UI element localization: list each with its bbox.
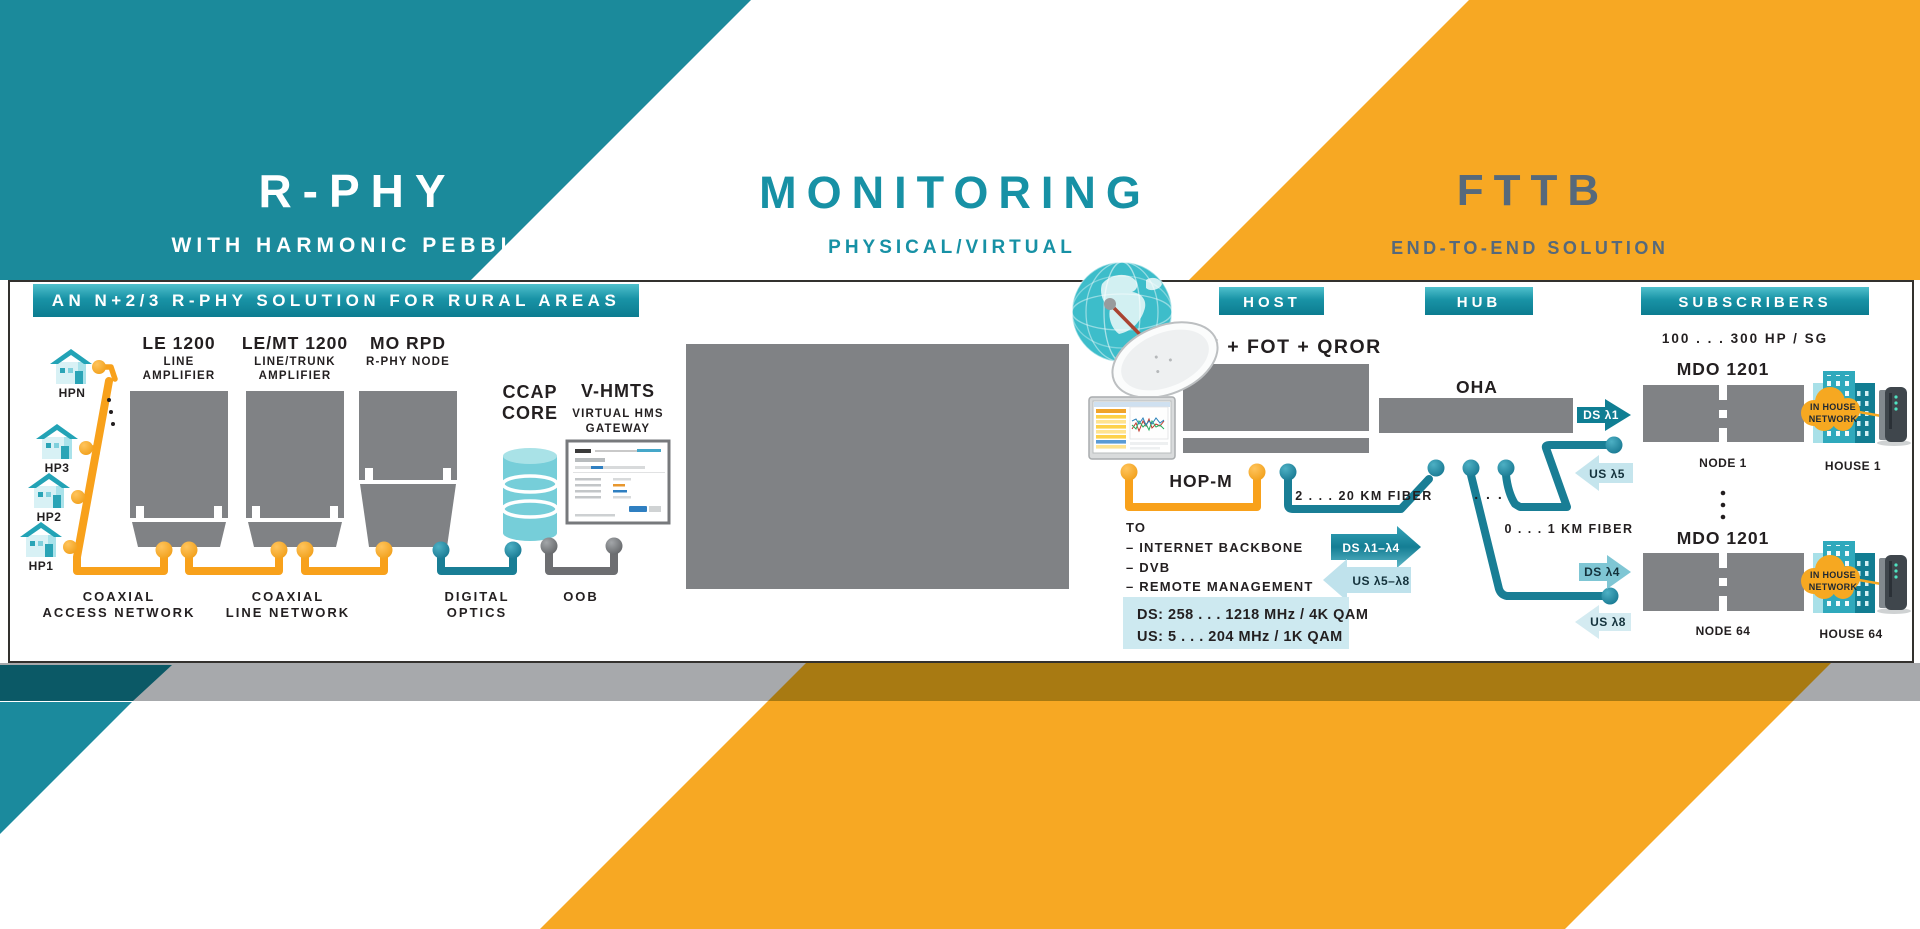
branch-ball [79,441,93,455]
house-label: HP3 [45,461,70,475]
pin-ball [376,542,393,559]
house-label: HP2 [37,510,62,524]
vhmts: V-HMTS VIRTUAL HMS GATEWAY [567,381,669,523]
vhmts-desc: VIRTUAL HMS [572,408,664,420]
node-label: NODE 1 [1699,456,1747,470]
house-label: HPN [59,386,86,400]
vhmts-name: V-HMTS [581,381,655,401]
ds-lambda1-label: DS λ1 [1583,408,1619,422]
spec-us: US: 5 . . . 204 MHz / 1K QAM [1137,629,1343,645]
rphy-subtitle: WITH HARMONIC PEBBLE [132,234,572,258]
ellipsis-dots [1721,515,1726,520]
network-labels: COAXIAL ACCESS NETWORK COAXIAL LINE NETW… [43,589,599,620]
us-lambda5-label: US λ5 [1589,467,1625,481]
modem-icon [1877,555,1911,614]
pin-ball-gray [606,538,623,555]
to-item: – INTERNET BACKBONE [1126,540,1303,555]
diagram-svg: AN N+2/3 R-PHY SOLUTION FOR RURAL AREAS [10,282,1912,661]
house-icon [50,349,92,384]
house-hp1: HP1 [20,522,62,573]
to-item: – REMOTE MANAGEMENT [1126,579,1313,594]
pin-ball-teal [1280,464,1297,481]
mdo-label: MDO 1201 [1677,528,1770,548]
pin-ball [1249,464,1266,481]
digital-optics-u [441,553,513,571]
vhmts-desc: GATEWAY [586,423,651,435]
device-morpd: MO RPD R-PHY NODE [359,333,457,547]
device-lemt1200: LE/MT 1200 LINE/TRUNK AMPLIFIER [242,333,348,547]
to-title: TO [1126,520,1146,535]
pin-ball-teal [505,542,522,559]
diagram-panel: AN N+2/3 R-PHY SOLUTION FOR RURAL AREAS [8,280,1914,663]
fiber-2-20km-label: 2 . . . 20 KM FIBER [1295,489,1433,503]
modem-icon [1877,387,1911,446]
device-body [246,391,344,506]
capacity-label: 100 . . . 300 HP / SG [1662,331,1828,346]
spec-ds: DS: 258 . . . 1218 MHz / 4K QAM [1137,607,1368,623]
device-desc: LINE/TRUNK [254,356,336,368]
mdo-label: MDO 1201 [1677,359,1770,379]
house-icon [28,473,70,508]
us-lambda5-8-label: US λ5–λ8 [1352,574,1409,588]
inhouse-label: NETWORK [1809,414,1858,424]
oob-u [549,549,614,571]
to-item: – DVB [1126,560,1170,575]
device-name: MO RPD [370,333,446,353]
monitoring-screenshot-placeholder [686,344,1069,589]
monitoring-subtitle: PHYSICAL/VIRTUAL [690,237,1210,259]
pin-ball [297,542,314,559]
device-skirt [360,484,456,547]
house-hp2: HP2 [28,473,70,524]
rural-banner: AN N+2/3 R-PHY SOLUTION FOR RURAL AREAS [33,284,639,317]
house-label: HOUSE 1 [1825,459,1881,473]
subscribers-section: SUBSCRIBERS 100 . . . 300 HP / SG MDO 12… [1641,287,1911,641]
branch-ball [63,540,77,554]
house-hp3: HP3 [36,424,78,475]
pin-ball [181,542,198,559]
inhouse-label: NETWORK [1809,582,1858,592]
fttb-subtitle: END-TO-END SOLUTION [1328,238,1728,259]
oha-pin [1498,460,1515,477]
device-skirt [248,522,342,547]
house-label: HOUSE 64 [1819,627,1882,641]
rural-banner-label: AN N+2/3 R-PHY SOLUTION FOR RURAL AREAS [52,291,621,310]
ellipsis-dots [107,398,111,402]
pin-ball [271,542,288,559]
device-skirt [132,522,226,547]
net-label: DIGITAL [444,589,509,604]
ccap-core: CCAP CORE [502,382,558,541]
infographic-canvas: R-PHY WITH HARMONIC PEBBLE MONITORING PH… [0,0,1920,929]
pin-ball-teal [1602,588,1619,605]
net-label: LINE NETWORK [226,605,350,620]
ocm-bar [1183,438,1369,453]
house-icon [20,522,62,557]
device-name: LE 1200 [142,333,215,353]
device-desc: AMPLIFIER [143,370,216,382]
ellipsis-dots [1721,503,1726,508]
hopm-label: HOP-M [1169,471,1232,491]
inhouse-label: IN HOUSE [1810,570,1856,580]
house-hpn: HPN [50,349,92,400]
device-desc: LINE [164,356,195,368]
ccap-label: CORE [502,403,558,423]
hub-section: HUB OHA . . . 0 . . . 1 KM FIBER DS λ1 U… [1379,287,1634,639]
ellipsis-dots [111,422,115,426]
subscribers-badge: SUBSCRIBERS [1678,294,1831,311]
pin-ball-teal [1606,437,1623,454]
ccap-label: CCAP [502,382,557,402]
us-lambda8-label: US λ8 [1590,615,1626,629]
oha-label: OHA [1456,377,1498,397]
net-label: COAXIAL [83,589,156,604]
cylinder-top [503,448,557,464]
house-label: HP1 [29,559,54,573]
monitoring-title: MONITORING [690,167,1210,219]
cylinder-body [503,456,557,541]
ellipsis-dots [1721,491,1726,496]
branch-ball [92,360,106,374]
device-name: LE/MT 1200 [242,333,348,353]
net-label: OOB [563,589,599,604]
branch-ball [71,490,85,504]
globe-dish-overlay [1062,258,1262,396]
coax-u3 [305,553,384,571]
monitoring-workstation [1089,397,1175,459]
node-label: NODE 64 [1696,624,1751,638]
house-icon [36,424,78,459]
device-body [130,391,228,506]
pin-ball-teal [433,542,450,559]
pin-ball-gray [541,538,558,555]
ellipsis-dots [109,410,113,414]
device-desc: AMPLIFIER [259,370,332,382]
ds-lambda4-label: DS λ4 [1584,565,1620,579]
ds-lambda1-4-label: DS λ1–λ4 [1342,541,1399,555]
hub-ellipsis: . . . [1474,486,1503,502]
device-le1200: LE 1200 LINE AMPLIFIER [130,333,228,547]
fttb-title: FTTB [1328,166,1728,216]
device-body [359,391,457,468]
coax-u2 [189,553,279,571]
oha-pin [1428,460,1445,477]
pin-ball [156,542,173,559]
fiber-0-1km-label: 0 . . . 1 KM FIBER [1504,522,1633,536]
hub-badge: HUB [1457,294,1502,311]
device-desc: R-PHY NODE [366,356,450,368]
oha-box [1379,398,1573,433]
net-label: OPTICS [447,605,507,620]
oha-pin [1463,460,1480,477]
rphy-title: R-PHY [132,164,572,218]
net-label: COAXIAL [252,589,325,604]
net-label: ACCESS NETWORK [43,605,196,620]
inhouse-label: IN HOUSE [1810,402,1856,412]
pin-ball [1121,464,1138,481]
